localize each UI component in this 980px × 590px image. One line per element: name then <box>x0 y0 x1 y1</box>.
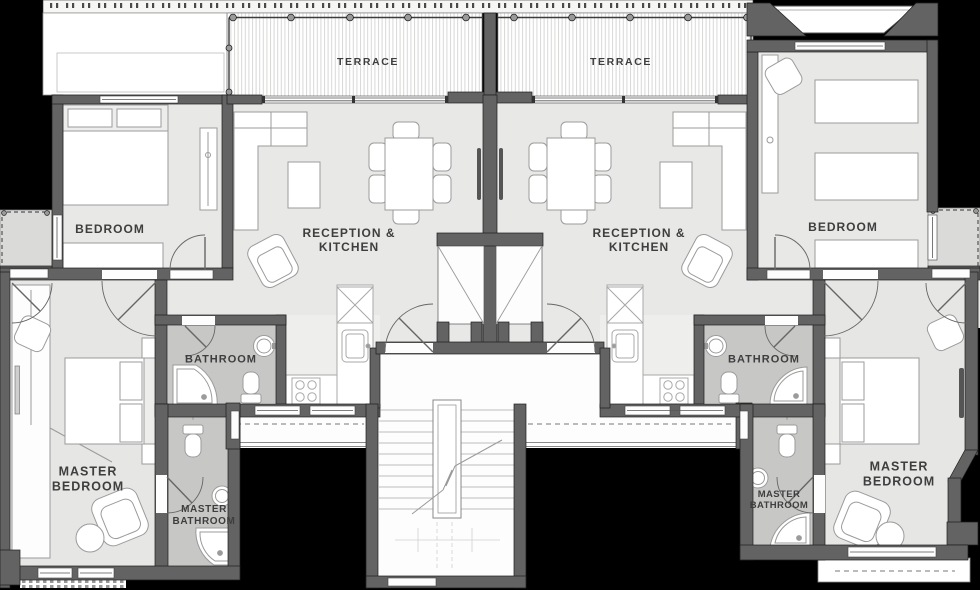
terrace-right-deck <box>498 13 753 100</box>
stair-stringer <box>433 400 461 518</box>
terrace-left-deck <box>227 13 482 100</box>
coffee-table-icon <box>288 162 320 208</box>
bed-icon <box>815 153 918 200</box>
balcony-left <box>0 210 52 272</box>
mirror-icon <box>959 368 964 418</box>
stove-icon <box>660 378 688 404</box>
ottoman-icon <box>76 524 104 552</box>
flat-roof <box>43 13 227 95</box>
bed-icon <box>815 240 918 268</box>
toilet-icon <box>719 372 739 403</box>
bench-icon <box>63 243 163 269</box>
window-grill-strip <box>20 580 126 588</box>
mirror-icon <box>15 366 20 414</box>
dresser-icon <box>200 128 217 210</box>
stove-icon <box>292 378 320 404</box>
mirror-icon <box>499 148 503 200</box>
floor-plan-drawing <box>0 0 980 590</box>
lower-roof-slab <box>818 558 970 582</box>
toilet-icon <box>241 372 261 403</box>
coffee-table-icon <box>660 162 692 208</box>
floor-plan-canvas: TERRACE TERRACE BEDROOM BEDROOM RECEPTIO… <box>0 0 980 590</box>
mirror-icon <box>477 148 481 200</box>
roof-edge-hatch <box>43 0 753 13</box>
bed-icon <box>815 80 918 123</box>
landing-floor <box>376 348 604 406</box>
bed-icon <box>63 105 168 205</box>
